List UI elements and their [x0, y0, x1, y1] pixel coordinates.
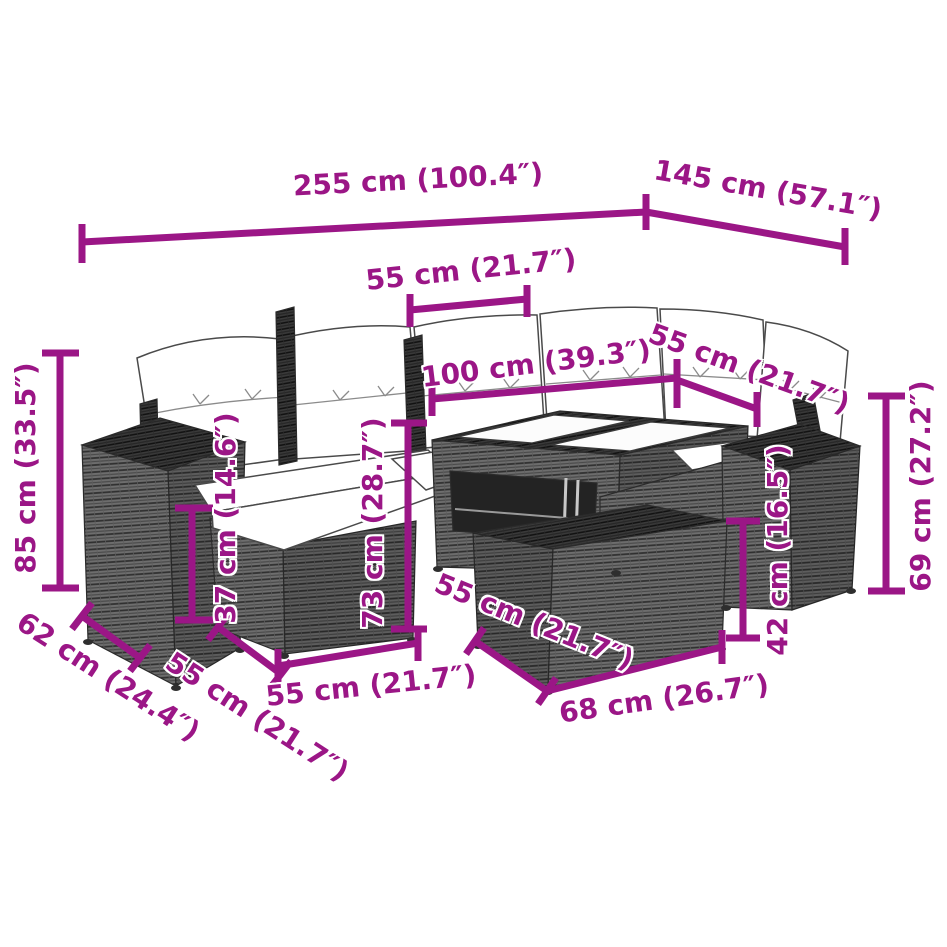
dim-line-total-depth: [646, 212, 845, 265]
dimension-diagram: 255 cm (100.4″) 145 cm (57.1″) 55 cm (21…: [0, 0, 947, 947]
back-cushion: [284, 326, 421, 459]
dim-label-ottoman-height: 42 cm (16.5″): [764, 444, 792, 655]
furniture-illustration: [0, 0, 947, 947]
dim-label-back-height: 85 cm (33.5″): [12, 362, 40, 573]
dim-label-armrest-height: 69 cm (27.2″): [907, 380, 935, 591]
dim-label-table-height: 73 cm (28.7″): [359, 417, 387, 628]
dim-label-seat-height: 37 cm (14.6″): [212, 412, 240, 623]
dim-line-armrest-height: [868, 396, 905, 591]
dim-line-back-height: [42, 353, 79, 588]
